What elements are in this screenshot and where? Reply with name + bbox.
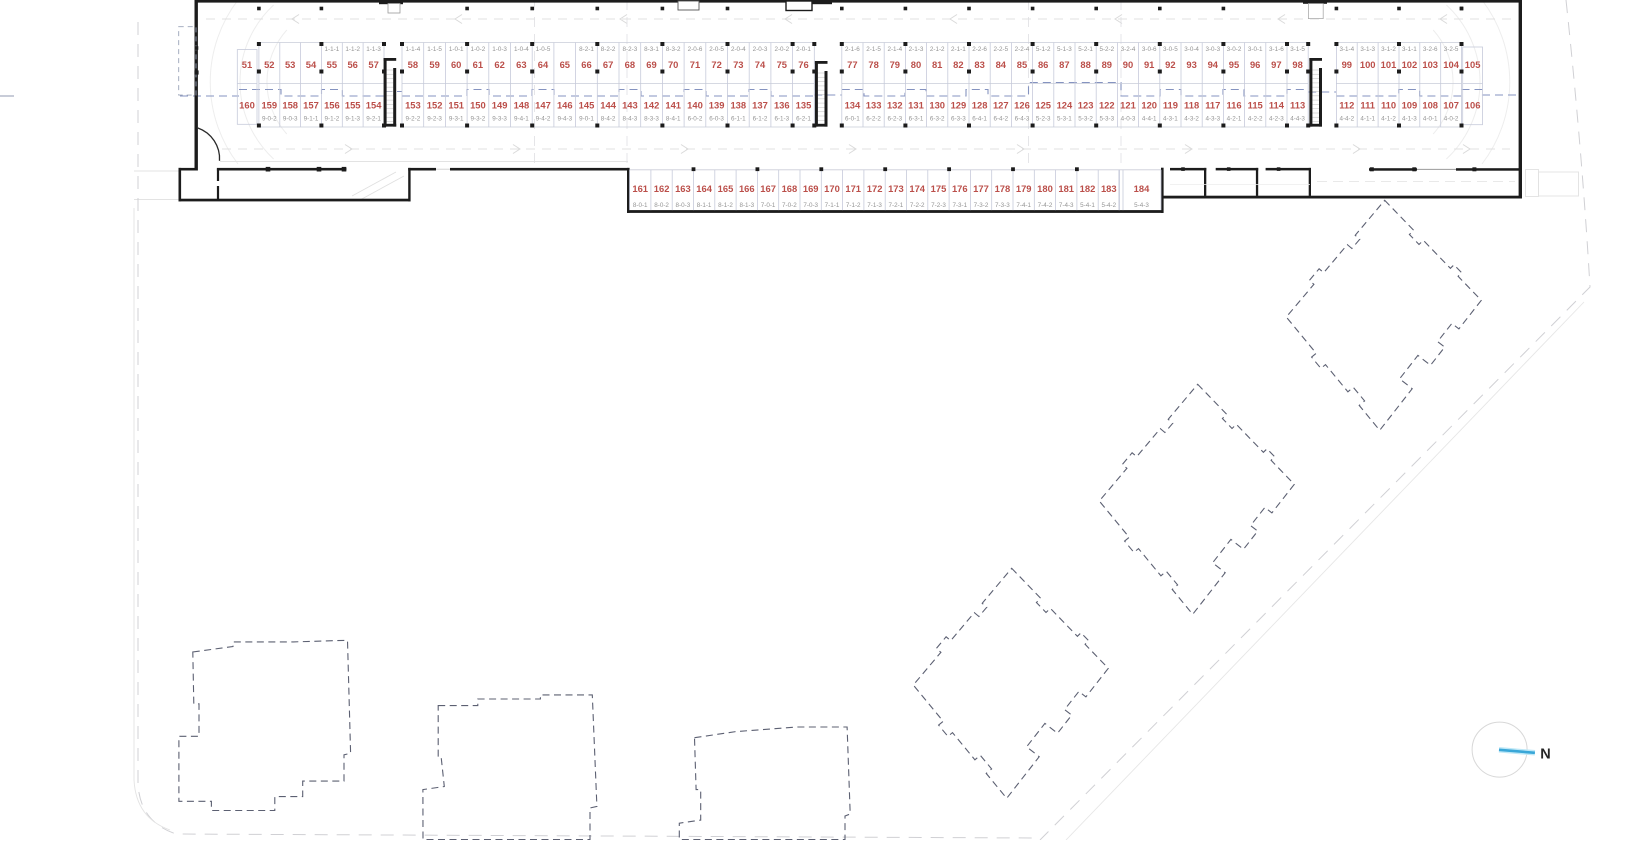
svg-text:8-4-1: 8-4-1 xyxy=(666,116,681,123)
svg-text:6-2-3: 6-2-3 xyxy=(887,116,902,123)
svg-text:128: 128 xyxy=(972,100,988,111)
svg-text:105: 105 xyxy=(1465,59,1481,70)
svg-text:158: 158 xyxy=(282,100,298,111)
svg-text:7-1-1: 7-1-1 xyxy=(825,202,840,209)
svg-text:111: 111 xyxy=(1360,100,1375,111)
svg-text:164: 164 xyxy=(696,183,712,194)
svg-text:134: 134 xyxy=(845,100,861,111)
svg-text:184: 184 xyxy=(1134,183,1150,194)
svg-text:181: 181 xyxy=(1058,183,1074,194)
svg-text:65: 65 xyxy=(560,59,570,70)
svg-text:5-1-3: 5-1-3 xyxy=(1057,46,1072,53)
svg-text:101: 101 xyxy=(1381,59,1397,70)
svg-text:168: 168 xyxy=(782,183,798,194)
svg-text:2-2-4: 2-2-4 xyxy=(1015,46,1030,53)
svg-text:8-0-3: 8-0-3 xyxy=(676,202,691,209)
svg-text:93: 93 xyxy=(1186,59,1196,70)
svg-text:53: 53 xyxy=(285,59,295,70)
svg-text:183: 183 xyxy=(1101,183,1117,194)
svg-text:5-3-3: 5-3-3 xyxy=(1099,116,1114,123)
svg-text:173: 173 xyxy=(888,183,904,194)
svg-text:6-0-1: 6-0-1 xyxy=(845,116,860,123)
svg-text:3-0-2: 3-0-2 xyxy=(1227,46,1242,53)
svg-text:9-2-2: 9-2-2 xyxy=(406,116,421,123)
svg-text:55: 55 xyxy=(327,59,337,70)
svg-text:71: 71 xyxy=(690,59,700,70)
svg-text:83: 83 xyxy=(974,59,984,70)
svg-text:3-1-3: 3-1-3 xyxy=(1360,46,1375,53)
svg-text:167: 167 xyxy=(760,183,776,194)
svg-text:95: 95 xyxy=(1229,59,1239,70)
svg-text:125: 125 xyxy=(1035,100,1051,111)
svg-text:5-2-2: 5-2-2 xyxy=(1099,46,1114,53)
svg-text:126: 126 xyxy=(1014,100,1030,111)
svg-text:2-0-3: 2-0-3 xyxy=(753,46,768,53)
svg-text:8-4-2: 8-4-2 xyxy=(601,116,616,123)
svg-text:160: 160 xyxy=(239,100,255,111)
svg-text:174: 174 xyxy=(909,183,925,194)
svg-text:150: 150 xyxy=(470,100,486,111)
svg-text:140: 140 xyxy=(687,100,703,111)
svg-text:116: 116 xyxy=(1226,100,1241,111)
svg-text:9-0-1: 9-0-1 xyxy=(579,116,594,123)
svg-text:63: 63 xyxy=(516,59,526,70)
svg-text:2-0-2: 2-0-2 xyxy=(774,46,789,53)
svg-text:9-2-3: 9-2-3 xyxy=(427,116,442,123)
svg-text:4-3-1: 4-3-1 xyxy=(1163,116,1178,123)
svg-text:8-1-3: 8-1-3 xyxy=(739,202,754,209)
svg-text:68: 68 xyxy=(625,59,635,70)
svg-text:178: 178 xyxy=(995,183,1011,194)
svg-text:89: 89 xyxy=(1102,59,1112,70)
svg-text:118: 118 xyxy=(1184,100,1199,111)
svg-text:175: 175 xyxy=(931,183,947,194)
svg-text:169: 169 xyxy=(803,183,819,194)
svg-text:124: 124 xyxy=(1057,100,1073,111)
svg-text:3-2-6: 3-2-6 xyxy=(1423,46,1438,53)
svg-text:9-4-1: 9-4-1 xyxy=(514,116,529,123)
svg-text:144: 144 xyxy=(600,100,616,111)
svg-text:9-3-3: 9-3-3 xyxy=(492,116,507,123)
svg-text:7-3-1: 7-3-1 xyxy=(952,202,967,209)
svg-text:59: 59 xyxy=(429,59,439,70)
svg-text:2-1-4: 2-1-4 xyxy=(887,46,902,53)
svg-text:58: 58 xyxy=(408,59,418,70)
svg-text:4-1-1: 4-1-1 xyxy=(1360,116,1375,123)
svg-text:9-1-3: 9-1-3 xyxy=(345,116,360,123)
svg-text:4-4-3: 4-4-3 xyxy=(1290,116,1305,123)
svg-text:3-1-1: 3-1-1 xyxy=(1402,46,1417,53)
svg-text:132: 132 xyxy=(887,100,903,111)
svg-text:1-1-4: 1-1-4 xyxy=(406,46,421,53)
svg-text:2-1-3: 2-1-3 xyxy=(909,46,924,53)
svg-text:52: 52 xyxy=(264,59,274,70)
svg-text:4-0-1: 4-0-1 xyxy=(1423,116,1438,123)
svg-text:8-2-2: 8-2-2 xyxy=(601,46,616,53)
svg-text:79: 79 xyxy=(890,59,900,70)
svg-text:6-1-3: 6-1-3 xyxy=(774,116,789,123)
svg-text:66: 66 xyxy=(581,59,591,70)
svg-text:7-1-2: 7-1-2 xyxy=(846,202,861,209)
svg-text:7-4-2: 7-4-2 xyxy=(1038,202,1053,209)
svg-text:4-1-3: 4-1-3 xyxy=(1402,116,1417,123)
svg-text:1-1-1: 1-1-1 xyxy=(325,46,340,53)
svg-text:3-0-4: 3-0-4 xyxy=(1184,46,1199,53)
svg-text:70: 70 xyxy=(668,59,678,70)
svg-text:2-1-6: 2-1-6 xyxy=(845,46,860,53)
svg-text:106: 106 xyxy=(1465,100,1481,111)
svg-text:1-0-4: 1-0-4 xyxy=(514,46,529,53)
svg-text:5-3-1: 5-3-1 xyxy=(1057,116,1072,123)
svg-text:9-4-3: 9-4-3 xyxy=(557,116,572,123)
svg-text:2-0-5: 2-0-5 xyxy=(709,46,724,53)
svg-text:141: 141 xyxy=(665,100,681,111)
svg-text:6-3-3: 6-3-3 xyxy=(951,116,966,123)
svg-text:4-0-2: 4-0-2 xyxy=(1444,116,1459,123)
svg-text:91: 91 xyxy=(1144,59,1154,70)
svg-text:172: 172 xyxy=(867,183,883,194)
svg-text:6-2-1: 6-2-1 xyxy=(796,116,811,123)
svg-text:100: 100 xyxy=(1360,59,1376,70)
svg-text:155: 155 xyxy=(345,100,361,111)
svg-text:1-1-3: 1-1-3 xyxy=(366,46,381,53)
svg-text:157: 157 xyxy=(303,100,319,111)
svg-text:115: 115 xyxy=(1248,100,1263,111)
svg-text:3-0-3: 3-0-3 xyxy=(1205,46,1220,53)
svg-text:2-0-1: 2-0-1 xyxy=(796,46,811,53)
svg-text:6-4-1: 6-4-1 xyxy=(972,116,987,123)
svg-text:120: 120 xyxy=(1141,100,1157,111)
svg-text:147: 147 xyxy=(535,100,551,111)
svg-text:74: 74 xyxy=(755,59,766,70)
svg-text:2-1-5: 2-1-5 xyxy=(866,46,881,53)
svg-text:7-0-1: 7-0-1 xyxy=(761,202,776,209)
svg-text:152: 152 xyxy=(427,100,443,111)
svg-text:159: 159 xyxy=(261,100,277,111)
svg-text:1-0-5: 1-0-5 xyxy=(536,46,551,53)
svg-text:5-2-1: 5-2-1 xyxy=(1078,46,1093,53)
svg-text:166: 166 xyxy=(739,183,755,194)
svg-text:2-1-2: 2-1-2 xyxy=(930,46,945,53)
svg-text:177: 177 xyxy=(973,183,989,194)
svg-text:138: 138 xyxy=(730,100,746,111)
svg-text:3-1-4: 3-1-4 xyxy=(1339,46,1354,53)
svg-text:119: 119 xyxy=(1163,100,1178,111)
svg-text:5-1-2: 5-1-2 xyxy=(1036,46,1051,53)
svg-text:4-2-2: 4-2-2 xyxy=(1248,116,1263,123)
svg-text:4-1-2: 4-1-2 xyxy=(1381,116,1396,123)
svg-text:90: 90 xyxy=(1123,59,1133,70)
svg-text:4-0-3: 4-0-3 xyxy=(1121,116,1136,123)
svg-text:9-3-2: 9-3-2 xyxy=(471,116,486,123)
svg-text:7-4-1: 7-4-1 xyxy=(1016,202,1031,209)
svg-text:8-0-2: 8-0-2 xyxy=(654,202,669,209)
svg-text:9-3-1: 9-3-1 xyxy=(449,116,464,123)
svg-text:7-3-3: 7-3-3 xyxy=(995,202,1010,209)
svg-text:171: 171 xyxy=(845,183,861,194)
svg-text:3-2-5: 3-2-5 xyxy=(1444,46,1459,53)
svg-text:2-1-1: 2-1-1 xyxy=(951,46,966,53)
svg-text:7-3-2: 7-3-2 xyxy=(974,202,989,209)
svg-text:114: 114 xyxy=(1269,100,1285,111)
svg-text:9-0-3: 9-0-3 xyxy=(283,116,298,123)
svg-text:142: 142 xyxy=(644,100,660,111)
svg-text:9-1-2: 9-1-2 xyxy=(325,116,340,123)
svg-text:162: 162 xyxy=(654,183,670,194)
svg-text:3-0-6: 3-0-6 xyxy=(1142,46,1157,53)
svg-text:163: 163 xyxy=(675,183,691,194)
svg-text:145: 145 xyxy=(579,100,595,111)
svg-text:8-3-2: 8-3-2 xyxy=(666,46,681,53)
svg-text:6-4-2: 6-4-2 xyxy=(993,116,1008,123)
svg-text:104: 104 xyxy=(1443,59,1459,70)
svg-text:7-2-2: 7-2-2 xyxy=(910,202,925,209)
svg-text:154: 154 xyxy=(366,100,382,111)
svg-text:4-4-1: 4-4-1 xyxy=(1142,116,1157,123)
svg-text:5-2-3: 5-2-3 xyxy=(1036,116,1051,123)
svg-text:80: 80 xyxy=(911,59,921,70)
svg-text:69: 69 xyxy=(646,59,656,70)
svg-text:81: 81 xyxy=(932,59,942,70)
svg-text:8-2-1: 8-2-1 xyxy=(579,46,594,53)
svg-text:5-4-3: 5-4-3 xyxy=(1134,202,1149,209)
svg-text:1-1-5: 1-1-5 xyxy=(427,46,442,53)
svg-text:84: 84 xyxy=(996,59,1007,70)
svg-text:56: 56 xyxy=(347,59,357,70)
svg-text:110: 110 xyxy=(1381,100,1396,111)
svg-text:4-3-3: 4-3-3 xyxy=(1205,116,1220,123)
svg-text:82: 82 xyxy=(953,59,963,70)
svg-text:3-1-2: 3-1-2 xyxy=(1381,46,1396,53)
svg-text:146: 146 xyxy=(557,100,573,111)
svg-text:2-2-6: 2-2-6 xyxy=(972,46,987,53)
svg-text:8-3-3: 8-3-3 xyxy=(644,116,659,123)
svg-text:64: 64 xyxy=(538,59,549,70)
svg-text:5-3-2: 5-3-2 xyxy=(1078,116,1093,123)
svg-text:5-4-2: 5-4-2 xyxy=(1101,202,1116,209)
svg-text:8-4-3: 8-4-3 xyxy=(623,116,638,123)
svg-text:6-4-3: 6-4-3 xyxy=(1015,116,1030,123)
svg-text:179: 179 xyxy=(1016,183,1032,194)
svg-text:127: 127 xyxy=(993,100,1009,111)
svg-text:182: 182 xyxy=(1080,183,1096,194)
svg-text:8-1-1: 8-1-1 xyxy=(697,202,712,209)
svg-text:122: 122 xyxy=(1099,100,1115,111)
svg-text:6-0-2: 6-0-2 xyxy=(688,116,703,123)
svg-text:156: 156 xyxy=(324,100,340,111)
svg-text:7-1-3: 7-1-3 xyxy=(867,202,882,209)
svg-text:72: 72 xyxy=(711,59,721,70)
svg-text:161: 161 xyxy=(632,183,648,194)
svg-text:85: 85 xyxy=(1017,59,1027,70)
svg-text:137: 137 xyxy=(752,100,768,111)
svg-text:4-4-2: 4-4-2 xyxy=(1339,116,1354,123)
svg-text:113: 113 xyxy=(1290,100,1305,111)
svg-text:143: 143 xyxy=(622,100,638,111)
svg-text:4-2-1: 4-2-1 xyxy=(1227,116,1242,123)
svg-text:5-4-1: 5-4-1 xyxy=(1080,202,1095,209)
svg-text:117: 117 xyxy=(1205,100,1220,111)
svg-text:7-2-1: 7-2-1 xyxy=(889,202,904,209)
svg-text:6-0-3: 6-0-3 xyxy=(709,116,724,123)
svg-text:N: N xyxy=(1540,747,1550,763)
svg-text:77: 77 xyxy=(847,59,857,70)
svg-text:102: 102 xyxy=(1402,59,1418,70)
svg-text:98: 98 xyxy=(1292,59,1302,70)
svg-text:87: 87 xyxy=(1059,59,1069,70)
svg-text:3-1-6: 3-1-6 xyxy=(1269,46,1284,53)
svg-text:2-0-4: 2-0-4 xyxy=(731,46,746,53)
svg-text:97: 97 xyxy=(1271,59,1281,70)
svg-text:139: 139 xyxy=(709,100,725,111)
svg-text:109: 109 xyxy=(1402,100,1418,111)
svg-text:7-2-3: 7-2-3 xyxy=(931,202,946,209)
svg-text:9-4-2: 9-4-2 xyxy=(536,116,551,123)
svg-text:6-3-1: 6-3-1 xyxy=(909,116,924,123)
svg-text:180: 180 xyxy=(1037,183,1053,194)
svg-text:176: 176 xyxy=(952,183,968,194)
svg-text:121: 121 xyxy=(1120,100,1136,111)
svg-text:9-1-1: 9-1-1 xyxy=(304,116,319,123)
svg-text:2-2-5: 2-2-5 xyxy=(993,46,1008,53)
svg-text:67: 67 xyxy=(603,59,613,70)
svg-text:3-2-4: 3-2-4 xyxy=(1121,46,1136,53)
svg-text:151: 151 xyxy=(448,100,464,111)
svg-text:9-2-1: 9-2-1 xyxy=(366,116,381,123)
svg-text:129: 129 xyxy=(951,100,967,111)
svg-text:165: 165 xyxy=(718,183,734,194)
svg-text:123: 123 xyxy=(1078,100,1094,111)
svg-text:131: 131 xyxy=(908,100,924,111)
svg-text:88: 88 xyxy=(1080,59,1090,70)
svg-text:54: 54 xyxy=(306,59,317,70)
svg-text:3-0-1: 3-0-1 xyxy=(1248,46,1263,53)
svg-text:4-3-2: 4-3-2 xyxy=(1184,116,1199,123)
svg-text:9-0-2: 9-0-2 xyxy=(262,116,277,123)
svg-text:1-0-2: 1-0-2 xyxy=(471,46,486,53)
svg-text:153: 153 xyxy=(405,100,421,111)
svg-text:76: 76 xyxy=(798,59,808,70)
svg-text:75: 75 xyxy=(777,59,787,70)
svg-text:135: 135 xyxy=(796,100,812,111)
svg-text:6-1-1: 6-1-1 xyxy=(731,116,746,123)
svg-text:107: 107 xyxy=(1443,100,1459,111)
svg-text:94: 94 xyxy=(1208,59,1219,70)
svg-text:130: 130 xyxy=(929,100,945,111)
svg-text:1-0-3: 1-0-3 xyxy=(492,46,507,53)
svg-text:103: 103 xyxy=(1422,59,1438,70)
svg-text:149: 149 xyxy=(492,100,508,111)
svg-text:2-0-6: 2-0-6 xyxy=(688,46,703,53)
svg-text:7-0-2: 7-0-2 xyxy=(782,202,797,209)
svg-text:133: 133 xyxy=(866,100,882,111)
svg-text:6-3-2: 6-3-2 xyxy=(930,116,945,123)
svg-text:8-3-1: 8-3-1 xyxy=(644,46,659,53)
svg-text:62: 62 xyxy=(494,59,504,70)
svg-text:1-1-2: 1-1-2 xyxy=(345,46,360,53)
svg-text:148: 148 xyxy=(514,100,530,111)
svg-text:108: 108 xyxy=(1422,100,1438,111)
svg-text:92: 92 xyxy=(1165,59,1175,70)
svg-text:8-0-1: 8-0-1 xyxy=(633,202,648,209)
svg-text:51: 51 xyxy=(242,59,252,70)
svg-text:136: 136 xyxy=(774,100,790,111)
svg-text:99: 99 xyxy=(1342,59,1352,70)
svg-text:78: 78 xyxy=(868,59,878,70)
svg-text:96: 96 xyxy=(1250,59,1260,70)
svg-text:8-2-3: 8-2-3 xyxy=(623,46,638,53)
svg-text:57: 57 xyxy=(368,59,378,70)
svg-text:60: 60 xyxy=(451,59,461,70)
svg-text:112: 112 xyxy=(1339,100,1354,111)
svg-text:61: 61 xyxy=(473,59,483,70)
svg-text:3-1-5: 3-1-5 xyxy=(1290,46,1305,53)
svg-text:73: 73 xyxy=(733,59,743,70)
svg-text:1-0-1: 1-0-1 xyxy=(449,46,464,53)
svg-text:170: 170 xyxy=(824,183,840,194)
svg-text:7-0-3: 7-0-3 xyxy=(803,202,818,209)
svg-text:6-2-2: 6-2-2 xyxy=(866,116,881,123)
svg-text:4-2-3: 4-2-3 xyxy=(1269,116,1284,123)
svg-text:3-0-5: 3-0-5 xyxy=(1163,46,1178,53)
svg-text:86: 86 xyxy=(1038,59,1048,70)
svg-text:8-1-2: 8-1-2 xyxy=(718,202,733,209)
svg-text:6-1-2: 6-1-2 xyxy=(753,116,768,123)
svg-text:7-4-3: 7-4-3 xyxy=(1059,202,1074,209)
